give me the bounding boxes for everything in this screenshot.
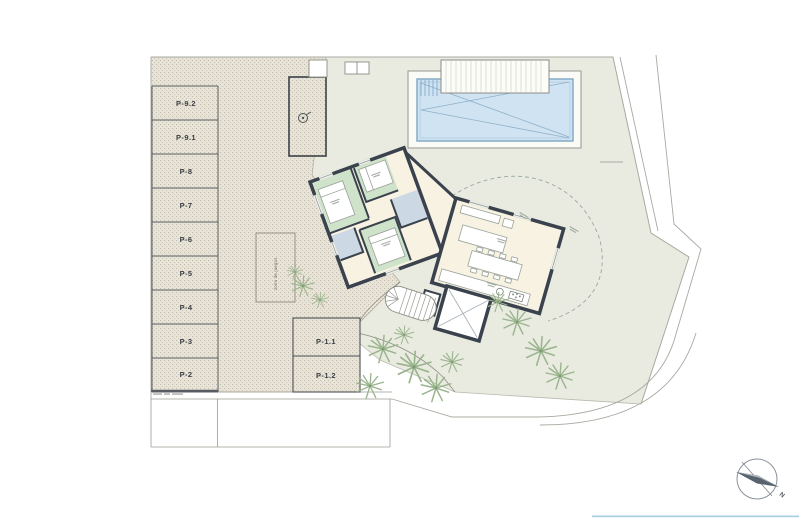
gate-boxes (345, 62, 369, 74)
stall-label-p11: P-1.1 (316, 337, 336, 346)
service-area-label: zona de juegos (273, 257, 278, 290)
pergola (441, 60, 549, 93)
sidewalk-lines (151, 391, 392, 447)
stall-label-p92: P-9.2 (176, 99, 196, 108)
frame-accent-line (592, 516, 799, 518)
stall-label-p5: P-5 (180, 269, 193, 278)
stall-label-p7: P-7 (180, 201, 193, 210)
site-plan-drawing: P-9.2 P-9.1 P-8 P-7 P-6 P-5 P-4 P-3 P-2 … (0, 0, 799, 520)
stall-label-p2: P-2 (180, 370, 193, 379)
curb-annotation-marks (153, 394, 183, 395)
stall-label-p91: P-9.1 (176, 133, 196, 142)
palm-tree (357, 374, 384, 399)
parking-island: P-1.1 P-1.2 (293, 318, 360, 392)
compass-north-label: N (778, 491, 786, 500)
stall-label-p4: P-4 (180, 303, 193, 312)
stall-label-p3: P-3 (180, 337, 193, 346)
site-plan-page: P-9.2 P-9.1 P-8 P-7 P-6 P-5 P-4 P-3 P-2 … (0, 0, 799, 520)
pool-area (408, 60, 581, 148)
stall-label-p12: P-1.2 (316, 371, 336, 380)
small-structure (309, 60, 327, 77)
compass-needle (736, 472, 779, 487)
stall-label-p6: P-6 (180, 235, 193, 244)
stall-label-p8: P-8 (180, 167, 193, 176)
compass-rose: N (736, 459, 786, 500)
